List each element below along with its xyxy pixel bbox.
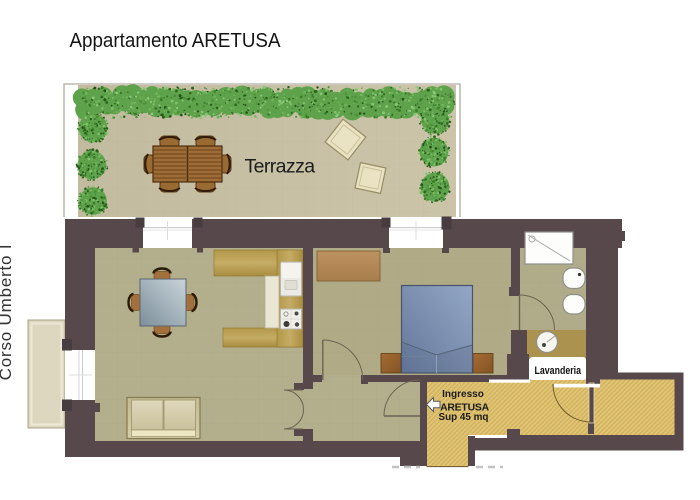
- svg-text:Corso Umberto I: Corso Umberto I: [0, 244, 15, 381]
- svg-text:Lavanderia: Lavanderia: [535, 365, 582, 377]
- svg-text:Ingresso: Ingresso: [442, 389, 484, 400]
- svg-text:Terrazza: Terrazza: [245, 156, 316, 178]
- svg-text:Appartamento ARETUSA: Appartamento ARETUSA: [70, 29, 281, 52]
- svg-text:Sup 45 mq: Sup 45 mq: [439, 412, 489, 423]
